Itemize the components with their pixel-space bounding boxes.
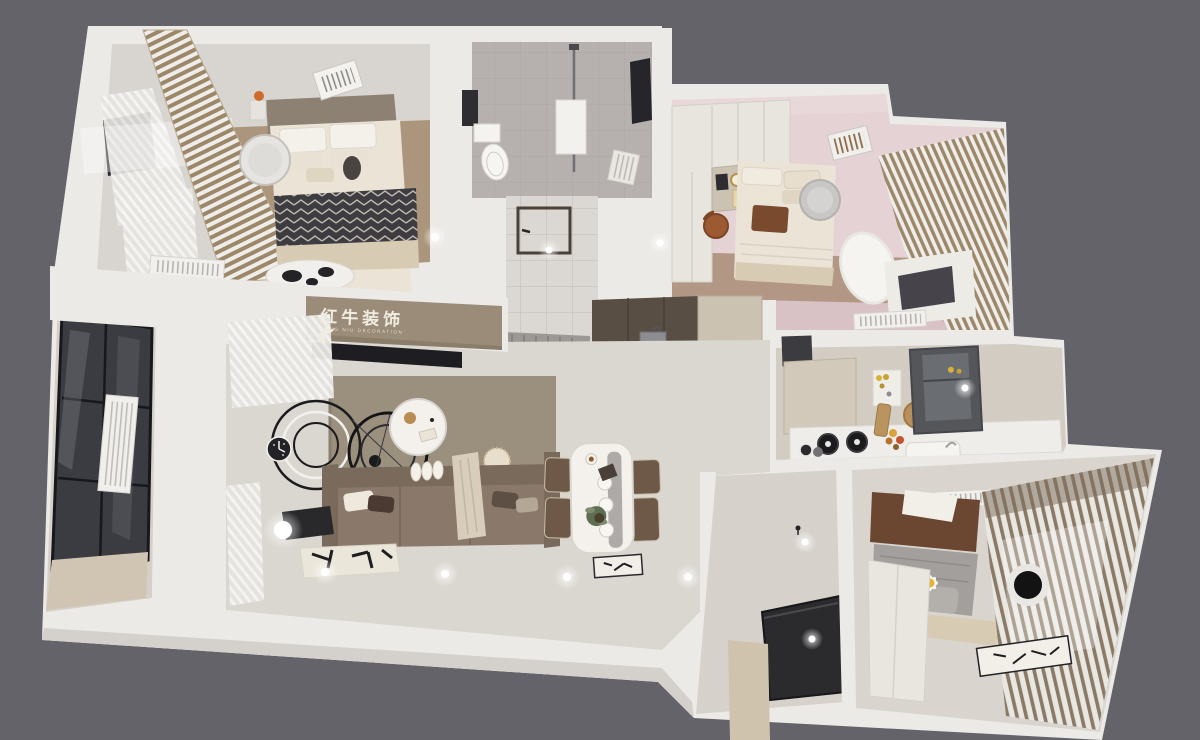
downlight bbox=[794, 531, 816, 553]
downlight bbox=[954, 377, 976, 399]
kitchen bbox=[776, 335, 1066, 462]
wall-bathroom-east bbox=[652, 28, 672, 200]
secondary-wardrobe bbox=[868, 560, 930, 702]
dining-chair bbox=[544, 458, 572, 493]
bedside-lamp bbox=[254, 91, 264, 101]
room-master-bedroom bbox=[80, 30, 430, 304]
lap-tray bbox=[751, 205, 789, 233]
throw-pillow bbox=[515, 497, 538, 513]
coffee-table bbox=[390, 399, 446, 455]
entry-wall-column bbox=[728, 640, 770, 740]
shower-head bbox=[569, 44, 579, 50]
floor-art-mat bbox=[593, 554, 642, 577]
shower-bench bbox=[608, 150, 640, 185]
balcony-living-divider-wall bbox=[152, 314, 226, 610]
throw-pillow bbox=[491, 490, 519, 509]
floor-lamp-glow bbox=[263, 510, 303, 550]
kitchen-cabinet-left bbox=[784, 358, 856, 434]
pillow bbox=[742, 167, 783, 186]
shower-screen bbox=[556, 100, 586, 154]
ceiling-light bbox=[240, 135, 290, 185]
hallway-tiles bbox=[506, 196, 598, 350]
downlight bbox=[312, 559, 338, 585]
downlight bbox=[649, 232, 671, 254]
towel-rack bbox=[462, 90, 478, 126]
pillow bbox=[744, 188, 778, 202]
radiator bbox=[854, 310, 927, 330]
downlight bbox=[423, 225, 447, 249]
sheer-curtain bbox=[226, 482, 264, 606]
hallway bbox=[506, 196, 598, 350]
downlight bbox=[801, 628, 823, 650]
entry-door bbox=[762, 596, 846, 700]
floorplan-canvas bbox=[0, 0, 1200, 740]
downlight bbox=[554, 564, 580, 590]
floorplan-render: ® 红牛装饰 HONG NIU DECORATION bbox=[0, 0, 1200, 740]
room-bathroom bbox=[462, 42, 652, 214]
downlight bbox=[675, 564, 701, 590]
wall-master-bath-divider bbox=[430, 28, 472, 300]
laptop bbox=[715, 174, 728, 191]
downlight bbox=[538, 239, 560, 261]
dining-table bbox=[570, 442, 634, 553]
dining-chair bbox=[629, 459, 660, 494]
bathroom-mirror bbox=[630, 58, 652, 124]
spice-shelf bbox=[873, 370, 901, 406]
downlight bbox=[432, 561, 458, 587]
room-kids-bedroom bbox=[672, 94, 1010, 330]
wall-clock bbox=[267, 437, 291, 461]
dining-chair bbox=[544, 498, 572, 539]
sheer-curtain bbox=[228, 314, 334, 408]
throw-pillow bbox=[411, 461, 443, 481]
ceiling-light bbox=[800, 180, 840, 220]
ceiling-light bbox=[1007, 564, 1049, 606]
throw-pillow bbox=[367, 495, 395, 514]
entry-hall bbox=[696, 470, 846, 740]
kids-bed bbox=[734, 160, 836, 286]
